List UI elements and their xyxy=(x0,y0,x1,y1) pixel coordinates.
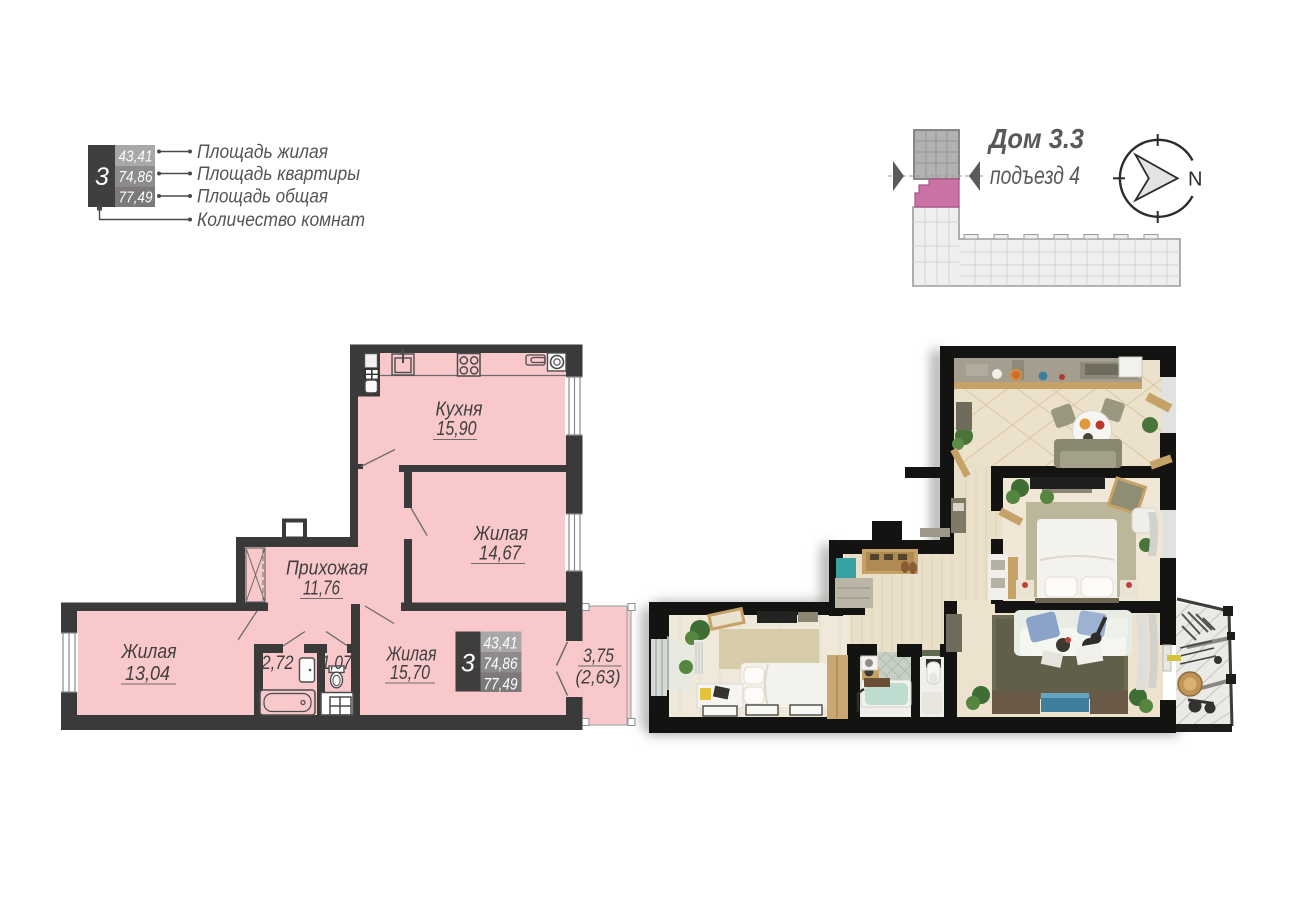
svg-text:77,49: 77,49 xyxy=(119,190,153,207)
svg-text:подъезд 4: подъезд 4 xyxy=(990,162,1080,190)
svg-text:14,67: 14,67 xyxy=(479,543,522,565)
svg-text:13,04: 13,04 xyxy=(125,663,170,685)
svg-text:Площадь общая: Площадь общая xyxy=(197,187,328,208)
svg-text:Площадь жилая: Площадь жилая xyxy=(197,142,328,163)
svg-text:(2,63): (2,63) xyxy=(576,668,621,689)
svg-text:Жилая: Жилая xyxy=(121,641,177,663)
svg-text:15,90: 15,90 xyxy=(437,418,477,440)
svg-text:43,41: 43,41 xyxy=(119,149,153,166)
svg-text:N: N xyxy=(1188,169,1202,191)
svg-text:11,76: 11,76 xyxy=(303,578,341,600)
svg-text:Дом 3.3: Дом 3.3 xyxy=(987,123,1084,154)
svg-text:Количество комнат: Количество комнат xyxy=(197,210,365,231)
svg-text:74,86: 74,86 xyxy=(119,169,153,186)
svg-text:77,49: 77,49 xyxy=(484,674,518,693)
svg-text:Площадь квартиры: Площадь квартиры xyxy=(197,164,360,185)
svg-text:Прихожая: Прихожая xyxy=(286,558,368,580)
svg-text:2,72: 2,72 xyxy=(261,653,294,674)
svg-text:1,07: 1,07 xyxy=(322,653,353,674)
svg-text:15,70: 15,70 xyxy=(390,662,430,684)
svg-text:74,86: 74,86 xyxy=(484,654,518,673)
svg-text:3: 3 xyxy=(461,650,475,678)
svg-text:3: 3 xyxy=(95,163,109,191)
svg-text:43,41: 43,41 xyxy=(484,634,518,653)
svg-text:3,75: 3,75 xyxy=(583,646,614,667)
